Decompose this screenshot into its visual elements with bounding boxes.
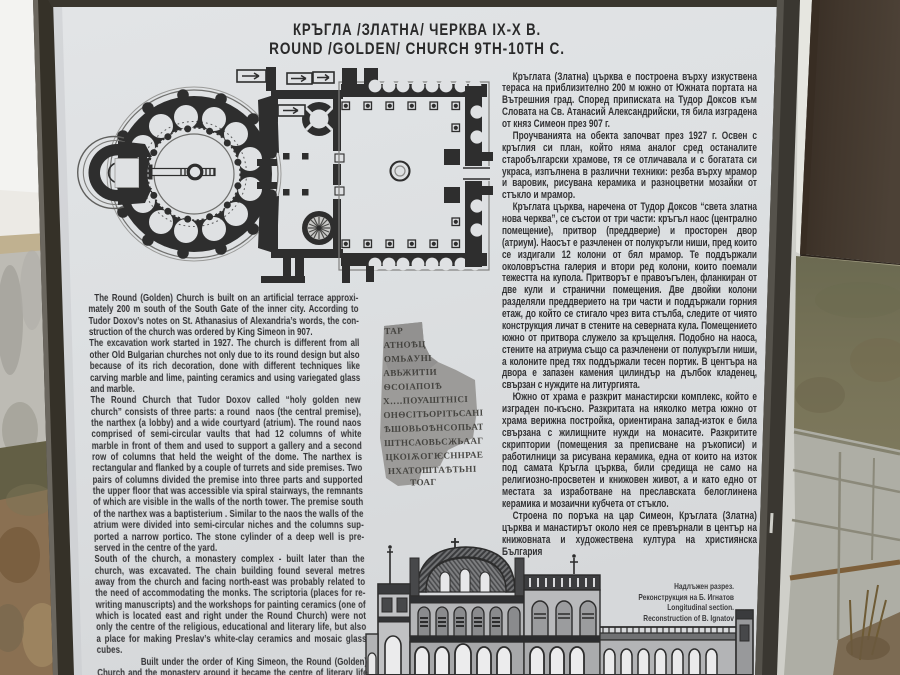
svg-text:ТАР: ТАР: [384, 326, 403, 336]
svg-text:ТОАГ: ТОАГ: [410, 477, 437, 488]
svg-text:ѲСОІАПОІѢ: ѲСОІАПОІѢ: [384, 381, 443, 393]
svg-text:АТНОѢЦ: АТНОѢЦ: [383, 339, 425, 350]
svg-text:ШТНСАОВЬСЖЬААГІ: ШТНСАОВЬСЖЬААГІ: [384, 435, 483, 448]
svg-text:ОМЬѦУНІ: ОМЬѦУНІ: [384, 353, 432, 364]
svg-text:ЦКОІѪОГѤСННРАЕ: ЦКОІѪОГѤСННРАЕ: [385, 450, 483, 463]
svg-text:АВЬЖИТІИ: АВЬЖИТІИ: [383, 367, 437, 378]
svg-text:НХАТОШТАѢТЬНІ: НХАТОШТАѢТЬНІ: [388, 464, 477, 476]
